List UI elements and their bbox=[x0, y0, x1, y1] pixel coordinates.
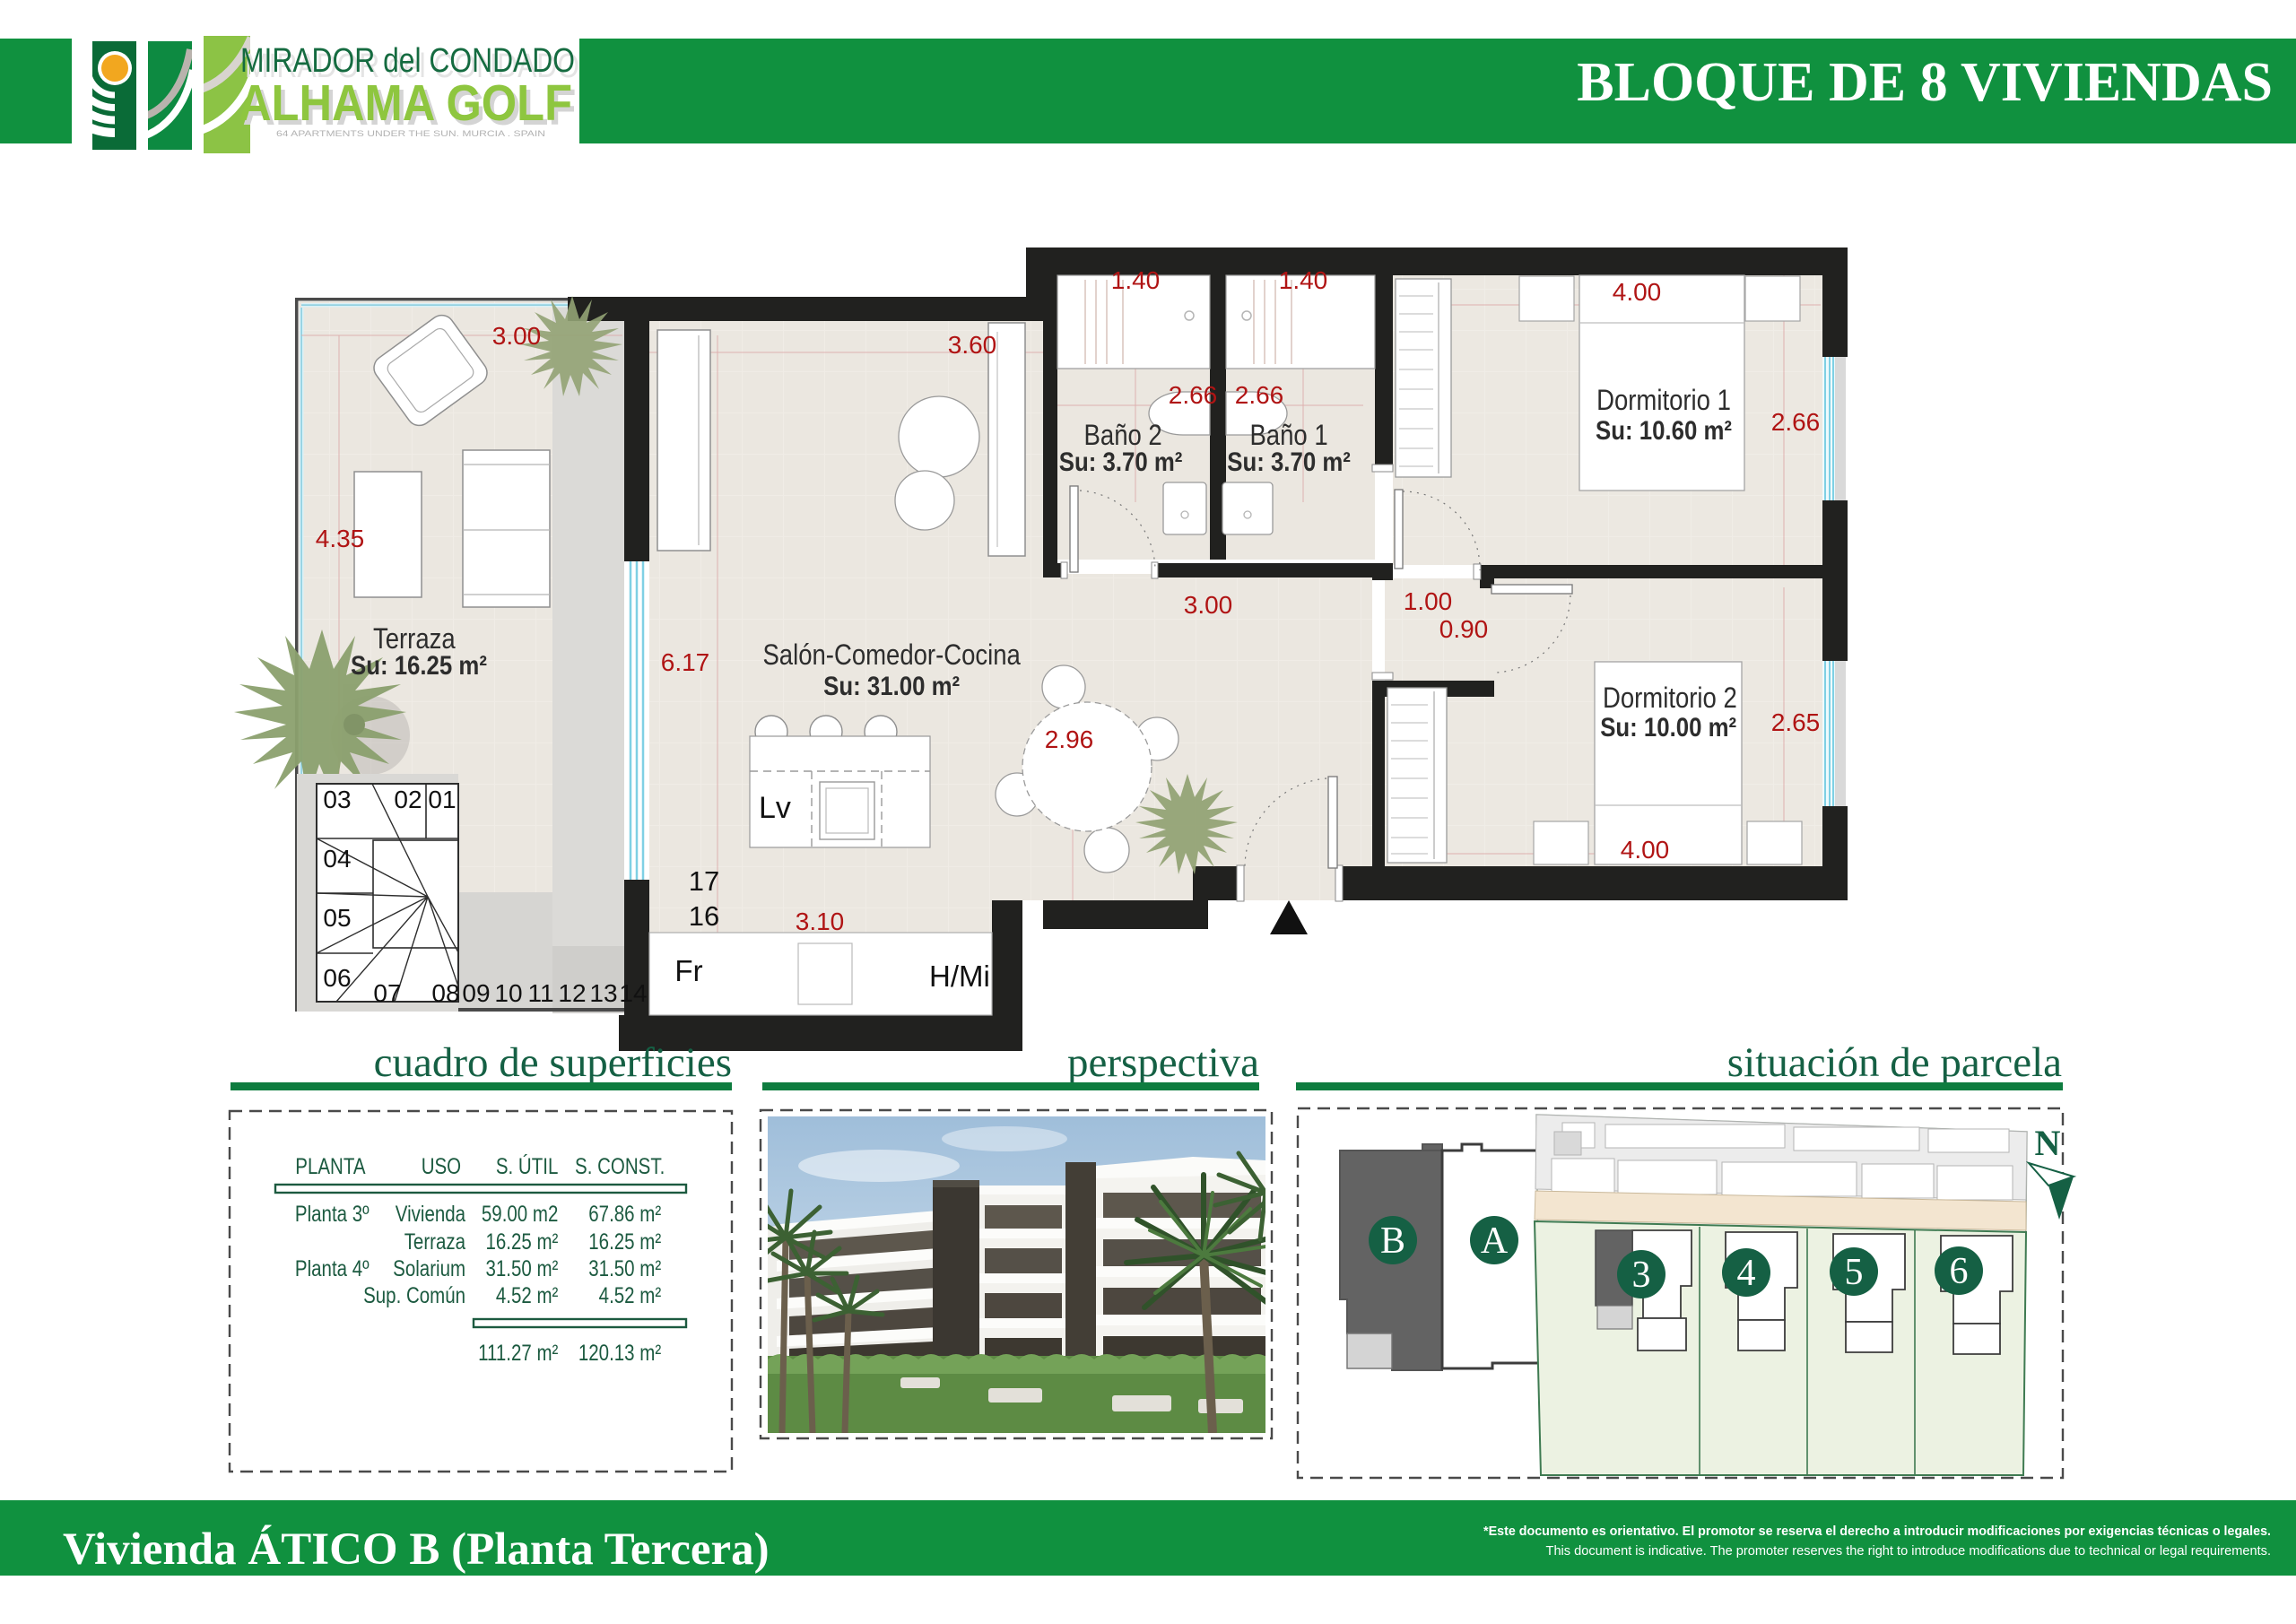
svg-text:Solarium: Solarium bbox=[393, 1255, 465, 1281]
svg-text:4: 4 bbox=[1737, 1253, 1756, 1294]
svg-text:A: A bbox=[1481, 1220, 1509, 1262]
svg-text:Dormitorio 1: Dormitorio 1 bbox=[1596, 385, 1731, 416]
svg-text:*Este documento es orientativo: *Este documento es orientativo. El promo… bbox=[1483, 1524, 2271, 1539]
svg-text:3.10: 3.10 bbox=[796, 908, 845, 935]
svg-text:02: 02 bbox=[394, 786, 422, 813]
svg-text:Vivienda ÁTICO B (Planta Terce: Vivienda ÁTICO B (Planta Tercera) bbox=[63, 1524, 770, 1575]
svg-text:31.50 m²: 31.50 m² bbox=[485, 1255, 558, 1281]
svg-text:05: 05 bbox=[323, 904, 351, 932]
svg-text:5: 5 bbox=[1845, 1252, 1864, 1293]
svg-text:2.66: 2.66 bbox=[1771, 408, 1821, 436]
svg-text:S. ÚTIL: S. ÚTIL bbox=[496, 1153, 558, 1178]
svg-text:11: 11 bbox=[527, 979, 553, 1007]
svg-text:67.86 m²: 67.86 m² bbox=[588, 1201, 661, 1226]
svg-text:10: 10 bbox=[494, 979, 522, 1007]
svg-text:17: 17 bbox=[689, 865, 719, 897]
svg-text:PLANTA: PLANTA bbox=[295, 1153, 366, 1178]
svg-text:ALHAMA GOLF: ALHAMA GOLF bbox=[239, 74, 572, 132]
svg-text:Vivienda: Vivienda bbox=[396, 1201, 466, 1226]
svg-text:Su: 31.00 m²: Su: 31.00 m² bbox=[823, 671, 960, 700]
svg-text:This document is indicative. T: This document is indicative. The promote… bbox=[1546, 1544, 2271, 1559]
svg-text:Su: 3.70 m²: Su: 3.70 m² bbox=[1227, 447, 1351, 476]
svg-text:16.25 m²: 16.25 m² bbox=[485, 1229, 558, 1254]
svg-text:09: 09 bbox=[462, 979, 490, 1007]
svg-text:6.17: 6.17 bbox=[661, 648, 710, 676]
svg-text:H/Mi: H/Mi bbox=[929, 960, 990, 993]
svg-text:4.00: 4.00 bbox=[1613, 278, 1662, 306]
svg-text:12: 12 bbox=[558, 979, 586, 1007]
svg-text:Terraza: Terraza bbox=[404, 1229, 466, 1254]
svg-text:Su: 10.00 m²: Su: 10.00 m² bbox=[1600, 712, 1736, 742]
svg-text:0.90: 0.90 bbox=[1439, 615, 1489, 643]
svg-text:perspectiva: perspectiva bbox=[1067, 1039, 1259, 1086]
svg-text:4.00: 4.00 bbox=[1621, 836, 1670, 864]
svg-text:N: N bbox=[2035, 1123, 2061, 1163]
svg-text:03: 03 bbox=[323, 786, 351, 813]
svg-text:2.66: 2.66 bbox=[1169, 381, 1218, 409]
svg-text:Fr: Fr bbox=[674, 954, 702, 987]
svg-text:Lv: Lv bbox=[759, 791, 791, 825]
svg-text:4.52 m²: 4.52 m² bbox=[496, 1282, 559, 1307]
svg-text:64 APARTMENTS UNDER THE SUN. M: 64 APARTMENTS UNDER THE SUN. MURCIA . SP… bbox=[276, 129, 545, 139]
svg-text:120.13 m²: 120.13 m² bbox=[578, 1340, 662, 1365]
svg-text:01: 01 bbox=[428, 786, 456, 813]
svg-text:1.40: 1.40 bbox=[1111, 266, 1161, 294]
svg-text:59.00 m2: 59.00 m2 bbox=[482, 1201, 558, 1226]
svg-text:BLOQUE DE 8 VIVIENDAS: BLOQUE DE 8 VIVIENDAS bbox=[1577, 52, 2273, 113]
svg-text:06: 06 bbox=[323, 964, 351, 992]
svg-text:08: 08 bbox=[431, 979, 459, 1007]
svg-text:2.65: 2.65 bbox=[1771, 708, 1821, 736]
svg-text:Planta 3º: Planta 3º bbox=[295, 1201, 370, 1226]
svg-text:Su: 16.25 m²: Su: 16.25 m² bbox=[351, 650, 487, 680]
svg-text:4.52 m²: 4.52 m² bbox=[599, 1282, 662, 1307]
svg-text:S. CONST.: S. CONST. bbox=[575, 1153, 665, 1178]
svg-text:04: 04 bbox=[323, 845, 351, 873]
svg-text:Planta 4º: Planta 4º bbox=[295, 1255, 370, 1281]
svg-text:Dormitorio 2: Dormitorio 2 bbox=[1603, 682, 1737, 714]
svg-text:cuadro de superficies: cuadro de superficies bbox=[374, 1039, 732, 1086]
svg-text:4.35: 4.35 bbox=[316, 525, 365, 552]
svg-text:Su: 10.60 m²: Su: 10.60 m² bbox=[1596, 415, 1732, 445]
svg-text:1.00: 1.00 bbox=[1404, 587, 1453, 615]
svg-text:Sup. Común: Sup. Común bbox=[363, 1282, 465, 1307]
svg-text:16.25 m²: 16.25 m² bbox=[588, 1229, 661, 1254]
svg-text:1.40: 1.40 bbox=[1279, 266, 1328, 294]
svg-text:B: B bbox=[1380, 1220, 1405, 1262]
svg-text:3: 3 bbox=[1632, 1255, 1651, 1296]
svg-text:6: 6 bbox=[1950, 1251, 1969, 1292]
svg-text:2.96: 2.96 bbox=[1045, 725, 1094, 753]
svg-text:13: 13 bbox=[589, 979, 617, 1007]
svg-text:31.50 m²: 31.50 m² bbox=[588, 1255, 661, 1281]
svg-text:07: 07 bbox=[373, 979, 401, 1007]
svg-text:2.66: 2.66 bbox=[1235, 381, 1284, 409]
svg-text:3.60: 3.60 bbox=[948, 331, 997, 359]
svg-text:16: 16 bbox=[689, 900, 719, 932]
svg-text:3.00: 3.00 bbox=[492, 322, 542, 350]
svg-text:14: 14 bbox=[619, 979, 647, 1007]
svg-text:111.27 m²: 111.27 m² bbox=[478, 1340, 559, 1365]
svg-text:USO: USO bbox=[422, 1153, 461, 1178]
svg-text:situación de parcela: situación de parcela bbox=[1727, 1039, 2062, 1086]
svg-text:Su: 3.70 m²: Su: 3.70 m² bbox=[1059, 447, 1183, 476]
svg-text:3.00: 3.00 bbox=[1184, 591, 1233, 619]
svg-text:Salón-Comedor-Cocina: Salón-Comedor-Cocina bbox=[762, 639, 1021, 671]
